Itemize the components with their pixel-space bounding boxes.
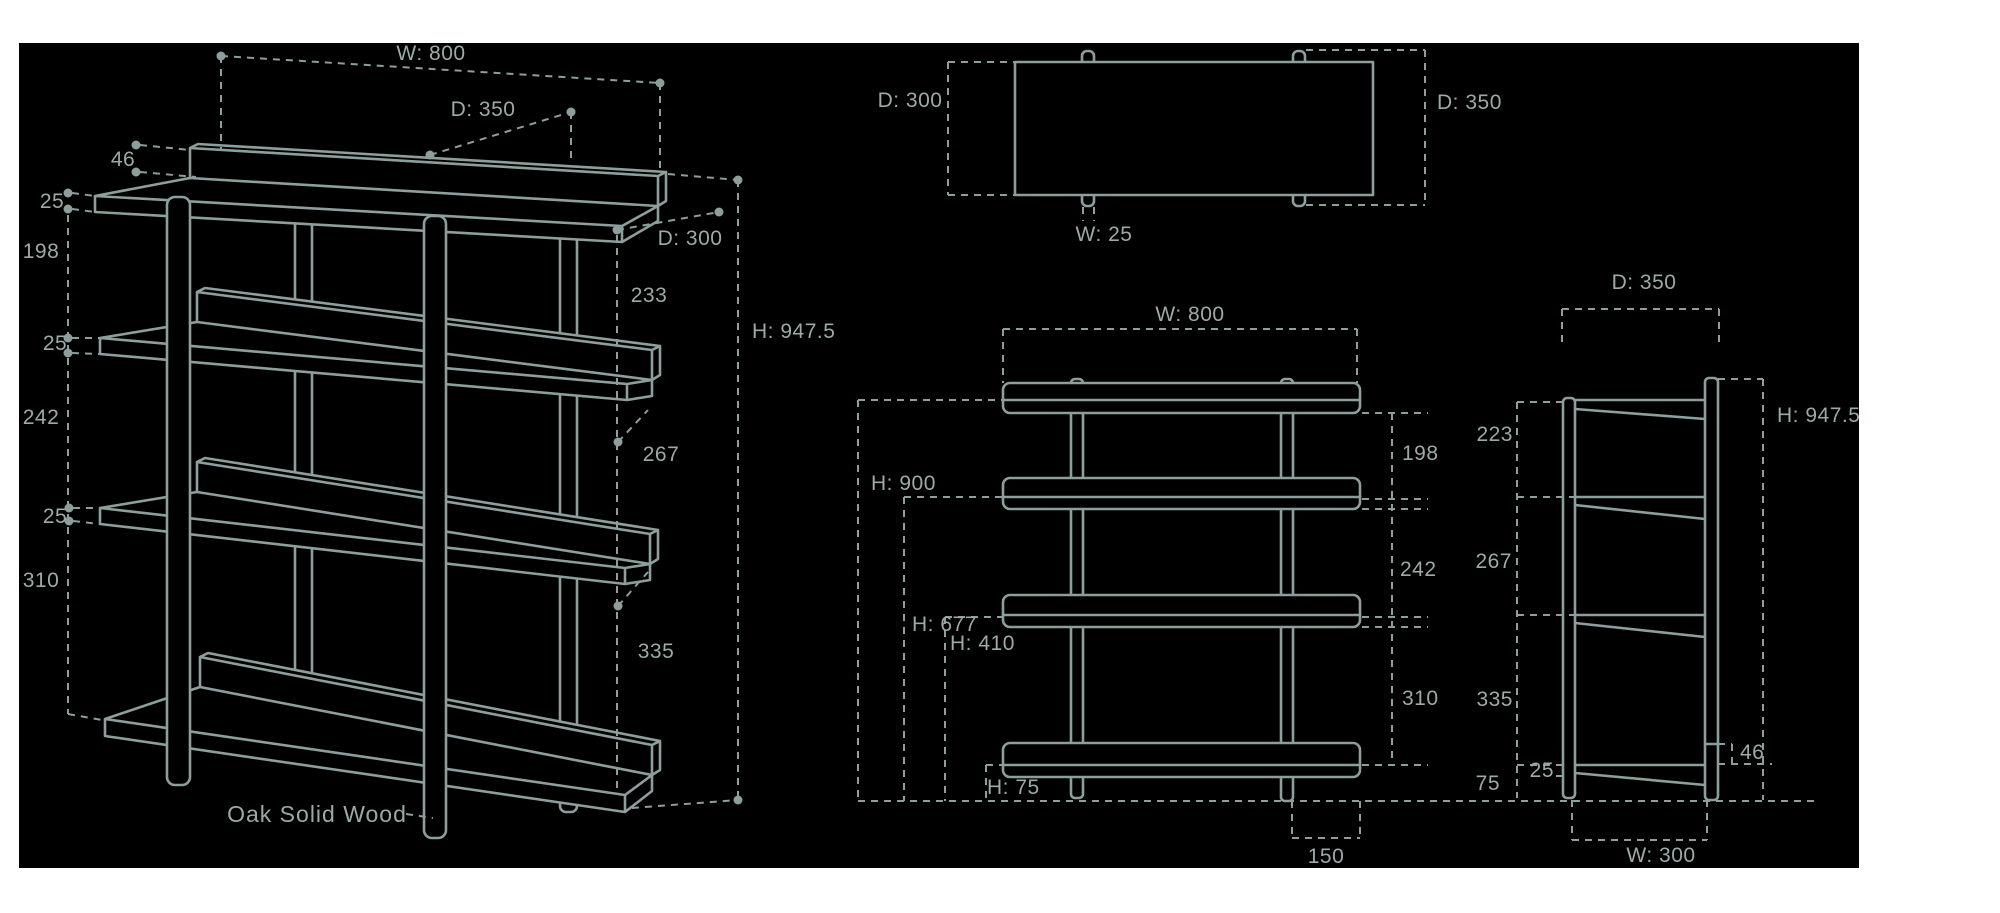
persp-width-label: W: 800 — [396, 42, 465, 65]
persp-thickness-low-label: 25 — [43, 505, 67, 528]
material-label: Oak Solid Wood — [227, 801, 407, 827]
persp-seg-low-label: 335 — [638, 640, 675, 663]
dim-dot — [64, 205, 73, 214]
persp-gap-low-label: 310 — [23, 569, 60, 592]
front-h900-label: H: 900 — [871, 472, 936, 495]
dim-dot — [614, 438, 623, 447]
front-top-shelf — [1003, 383, 1360, 413]
dim-dot — [613, 226, 622, 235]
side-back-post — [1705, 378, 1718, 800]
front-bottom-shelf — [1003, 743, 1360, 777]
back-right-leg — [560, 178, 577, 812]
persp-total-height-label: H: 947.5 — [752, 320, 835, 343]
front-leg-inset-label: 150 — [1308, 845, 1345, 868]
front-width-label: W: 800 — [1155, 303, 1224, 326]
dim-dot — [734, 796, 743, 805]
dim-dot — [217, 52, 226, 61]
front-h410-label: H: 410 — [950, 632, 1015, 655]
top-board-plan — [1015, 62, 1373, 195]
persp-lip-label: 46 — [111, 148, 135, 171]
dim-dot — [567, 108, 576, 117]
side-seg4-label: 75 — [1476, 772, 1500, 795]
front-view-left-post — [1071, 379, 1083, 798]
persp-seg-top-label: 233 — [631, 284, 668, 307]
side-width-label: W: 300 — [1626, 844, 1695, 867]
front-view-right-post — [1281, 379, 1293, 801]
side-height-label: H: 947.5 — [1777, 404, 1860, 427]
side-seg3-label: 335 — [1476, 688, 1513, 711]
persp-thickness-mid-label: 25 — [43, 332, 67, 355]
side-front-post — [1563, 398, 1575, 798]
front-right-leg — [424, 216, 446, 838]
persp-thickness-top-label: 25 — [40, 190, 64, 213]
side-thickness-label: 25 — [1530, 759, 1554, 782]
dim-dot — [426, 151, 435, 160]
dim-dot — [715, 208, 724, 217]
front-gap-low-label: 310 — [1402, 687, 1439, 710]
persp-depth-top-label: D: 350 — [451, 98, 516, 121]
persp-depth-board-label: D: 300 — [658, 227, 723, 250]
front-second-shelf — [1003, 478, 1360, 509]
front-h75-label: H: 75 — [987, 776, 1040, 799]
dim-dot — [614, 602, 623, 611]
dim-dot — [656, 79, 665, 88]
dim-dot — [734, 176, 743, 185]
plan-leg-width-label: W: 25 — [1076, 223, 1133, 246]
side-lip-label: 46 — [1740, 741, 1764, 764]
blueprint-page: W: 800 D: 350 46 25 198 25 242 25 310 D:… — [0, 0, 2000, 913]
plan-depth-total-label: D: 350 — [1437, 91, 1502, 114]
side-seg2-label: 267 — [1475, 550, 1512, 573]
persp-seg-mid-label: 267 — [643, 443, 680, 466]
persp-gap-mid-label: 242 — [23, 406, 60, 429]
blueprint-canvas: W: 800 D: 350 46 25 198 25 242 25 310 D:… — [0, 0, 2000, 913]
side-seg1-label: 223 — [1476, 423, 1513, 446]
side-depth-label: D: 350 — [1612, 271, 1677, 294]
front-gap-top-label: 198 — [1402, 442, 1439, 465]
dim-dot — [64, 189, 73, 198]
persp-gap-top-label: 198 — [23, 240, 60, 263]
front-gap-mid-label: 242 — [1400, 558, 1437, 581]
front-left-leg — [167, 197, 190, 785]
plan-depth-board-label: D: 300 — [878, 89, 943, 112]
front-third-shelf — [1003, 595, 1360, 627]
